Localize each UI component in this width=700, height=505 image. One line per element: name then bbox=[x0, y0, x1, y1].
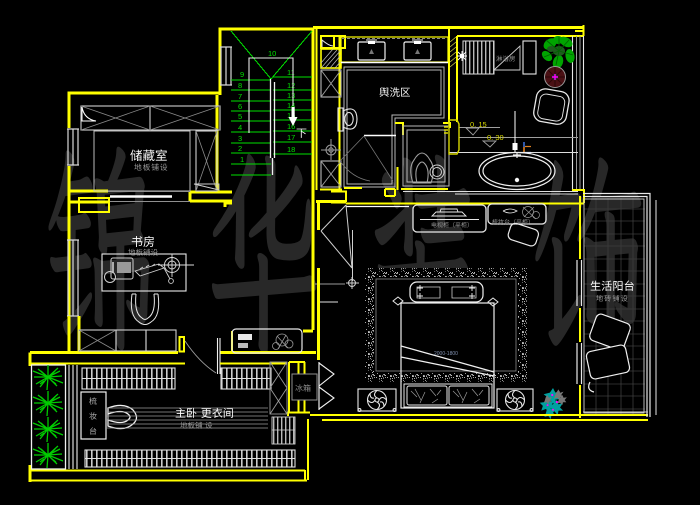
svg-text:10: 10 bbox=[268, 49, 276, 58]
svg-text:17: 17 bbox=[287, 133, 295, 142]
svg-text:7: 7 bbox=[238, 92, 242, 101]
svg-text:5: 5 bbox=[238, 112, 242, 121]
svg-text:3: 3 bbox=[238, 134, 242, 143]
svg-text:9: 9 bbox=[240, 70, 244, 79]
svg-text:2000-1800: 2000-1800 bbox=[434, 351, 458, 357]
svg-text:13: 13 bbox=[287, 91, 295, 100]
svg-text:11: 11 bbox=[287, 68, 295, 77]
svg-text:2: 2 bbox=[238, 144, 242, 153]
svg-text:1: 1 bbox=[240, 155, 244, 164]
svg-text:4: 4 bbox=[238, 123, 242, 132]
svg-text:6: 6 bbox=[238, 102, 242, 111]
svg-text:8: 8 bbox=[238, 81, 242, 90]
svg-text:18: 18 bbox=[287, 145, 295, 154]
svg-text:12: 12 bbox=[287, 81, 295, 90]
